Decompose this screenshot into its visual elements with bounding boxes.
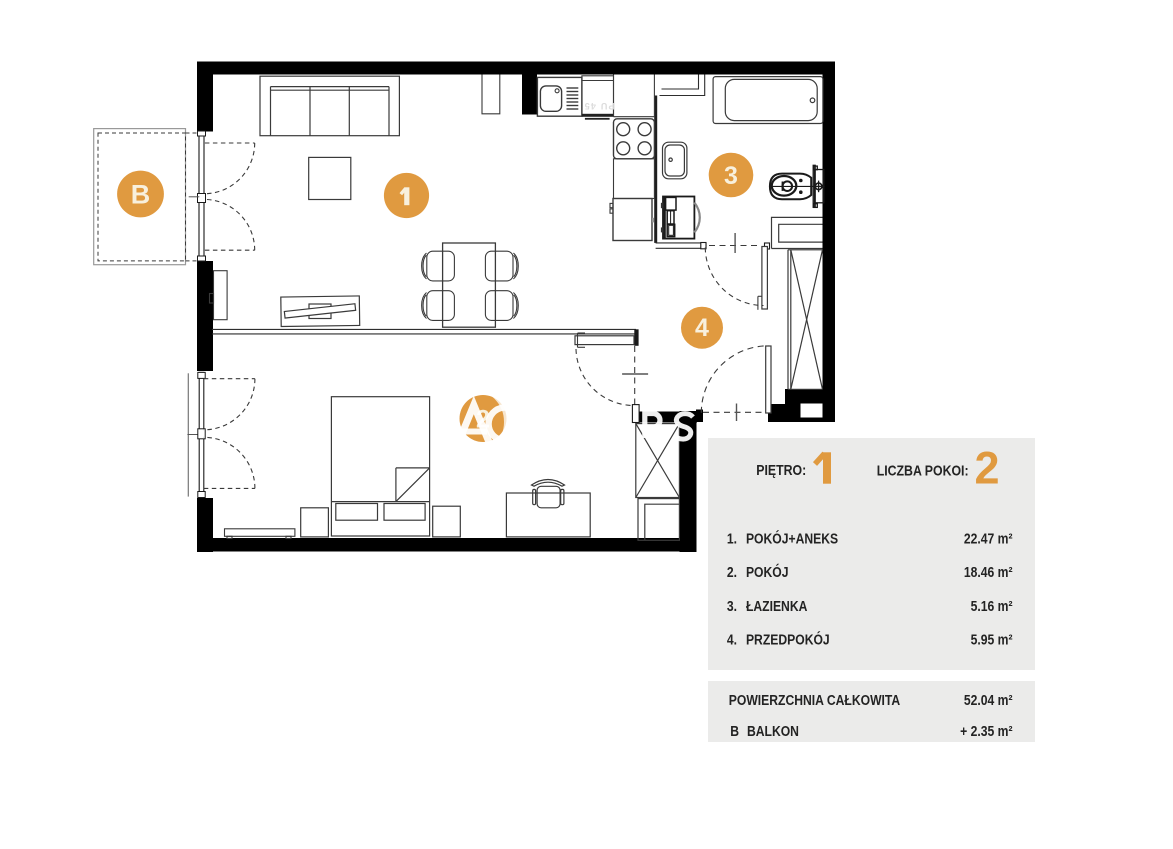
svg-text:ŁAZIENKA: ŁAZIENKA [746,598,808,614]
svg-text:POWIERZCHNIA CAŁKOWITA: POWIERZCHNIA CAŁKOWITA [729,692,901,708]
svg-text:PRZEDPOKÓJ: PRZEDPOKÓJ [746,632,830,648]
svg-text:5.16 m²: 5.16 m² [971,598,1013,614]
svg-text:B: B [131,180,151,210]
svg-text:3.: 3. [727,598,737,614]
svg-text:LICZBA POKOI:: LICZBA POKOI: [877,462,969,478]
svg-text:22.47 m²: 22.47 m² [964,531,1013,547]
svg-text:+ 2.35 m²: + 2.35 m² [960,723,1013,739]
svg-text:POKÓJ+ANEKS: POKÓJ+ANEKS [746,531,838,547]
svg-text:4.: 4. [727,632,737,648]
svg-text:5.95 m²: 5.95 m² [971,632,1013,648]
svg-text:PIĘTRO:: PIĘTRO: [756,462,806,478]
svg-text:52.04 m²: 52.04 m² [964,692,1013,708]
svg-text:2.: 2. [727,564,737,580]
svg-text:POKÓJ: POKÓJ [746,564,789,580]
svg-text:PU 45: PU 45 [583,101,614,111]
svg-text:B: B [730,723,739,739]
svg-text:2: 2 [974,443,999,494]
svg-text:1.: 1. [727,531,737,547]
svg-text:18.46 m²: 18.46 m² [964,564,1013,580]
svg-text:4: 4 [695,314,709,342]
svg-text:BALKON: BALKON [747,723,799,739]
svg-text:3: 3 [724,162,738,190]
